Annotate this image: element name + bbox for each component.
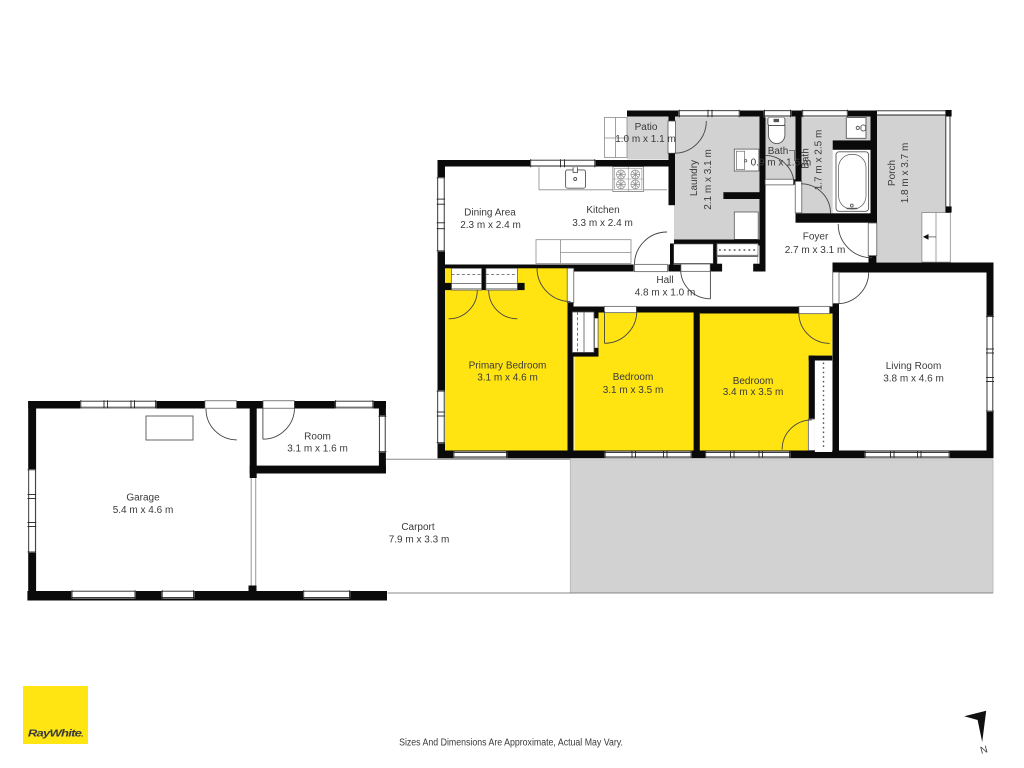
svg-text:Hall: Hall <box>656 275 673 286</box>
svg-text:1.7 m x 2.5 m: 1.7 m x 2.5 m <box>814 130 825 191</box>
svg-text:Laundry: Laundry <box>689 160 700 196</box>
svg-text:4.8 m x 1.0 m: 4.8 m x 1.0 m <box>635 288 696 299</box>
svg-text:1.8 m x 3.7 m: 1.8 m x 3.7 m <box>900 143 911 204</box>
svg-text:Bath: Bath <box>768 146 789 157</box>
svg-text:7.9 m x 3.3 m: 7.9 m x 3.3 m <box>389 535 450 546</box>
svg-text:RayWhite.: RayWhite. <box>28 728 84 739</box>
svg-text:Garage: Garage <box>126 493 160 504</box>
svg-text:Kitchen: Kitchen <box>586 205 619 216</box>
svg-text:Foyer: Foyer <box>803 232 829 243</box>
svg-text:Carport: Carport <box>401 522 435 533</box>
svg-text:Sizes And Dimensions Are Appro: Sizes And Dimensions Are Approximate, Ac… <box>399 736 623 748</box>
svg-text:3.1 m x 4.6 m: 3.1 m x 4.6 m <box>477 373 538 384</box>
svg-text:Bedroom: Bedroom <box>613 372 654 383</box>
svg-text:5.4 m x 4.6 m: 5.4 m x 4.6 m <box>113 505 174 516</box>
svg-text:Dining Area: Dining Area <box>464 208 516 219</box>
svg-text:2.7 m x 3.1 m: 2.7 m x 3.1 m <box>785 245 846 256</box>
svg-text:3.8 m x 4.6 m: 3.8 m x 4.6 m <box>883 374 944 385</box>
svg-text:Bath: Bath <box>801 148 812 169</box>
svg-text:Room: Room <box>304 432 331 443</box>
svg-text:Porch: Porch <box>887 160 898 186</box>
svg-text:3.1 m x 1.6 m: 3.1 m x 1.6 m <box>287 444 348 455</box>
svg-text:Patio: Patio <box>635 122 658 133</box>
svg-text:3.4 m x 3.5 m: 3.4 m x 3.5 m <box>723 387 784 398</box>
svg-text:Bedroom: Bedroom <box>733 376 774 387</box>
svg-text:Living Room: Living Room <box>886 361 942 372</box>
svg-text:2.1 m x 3.1 m: 2.1 m x 3.1 m <box>703 149 714 210</box>
svg-text:3.1 m x 3.5 m: 3.1 m x 3.5 m <box>603 385 664 396</box>
svg-text:3.3 m x 2.4 m: 3.3 m x 2.4 m <box>572 218 633 229</box>
svg-text:2.3 m x 2.4 m: 2.3 m x 2.4 m <box>460 220 521 231</box>
svg-text:Primary Bedroom: Primary Bedroom <box>469 361 547 372</box>
svg-text:1.0 m x 1.1 m: 1.0 m x 1.1 m <box>615 134 676 145</box>
